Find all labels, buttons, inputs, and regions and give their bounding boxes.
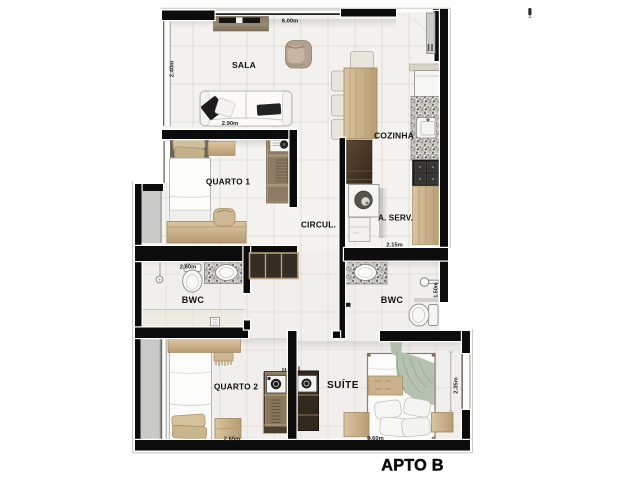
svg-text:6.00m: 6.00m — [282, 18, 298, 24]
svg-text:2.80m: 2.80m — [180, 265, 196, 271]
svg-text:CIRCUL.: CIRCUL. — [301, 220, 336, 230]
svg-text:QUARTO 1: QUARTO 1 — [206, 177, 251, 187]
svg-text:2.15m: 2.15m — [386, 243, 402, 249]
svg-text:SUÍTE: SUÍTE — [327, 378, 359, 391]
svg-text:2.90m: 2.90m — [222, 121, 238, 127]
svg-text:BWC: BWC — [381, 295, 404, 305]
svg-text:2.65m: 2.65m — [224, 437, 240, 443]
svg-text:A. SERV.: A. SERV. — [378, 214, 413, 223]
svg-text:BWC: BWC — [182, 295, 205, 305]
svg-text:COZINHA: COZINHA — [374, 131, 414, 141]
svg-text:QUARTO 2: QUARTO 2 — [214, 382, 259, 392]
svg-text:3.60m: 3.60m — [367, 436, 383, 442]
svg-text:2.35m: 2.35m — [454, 377, 460, 393]
svg-text:SALA: SALA — [232, 60, 256, 70]
svg-text:APTO B: APTO B — [381, 456, 443, 474]
svg-text:2.40m: 2.40m — [170, 61, 176, 77]
svg-text:1.50m: 1.50m — [434, 282, 440, 298]
